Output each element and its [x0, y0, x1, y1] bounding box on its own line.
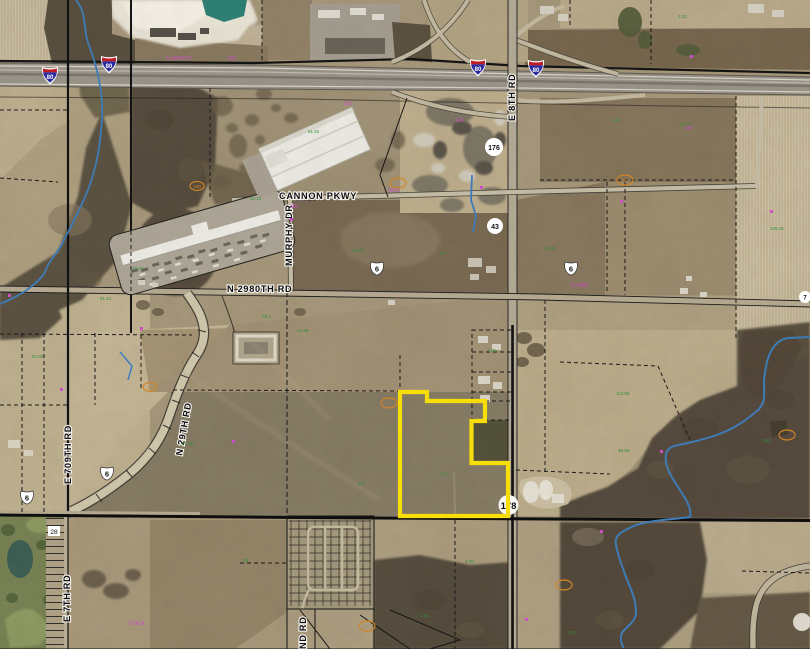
svg-text:2.23: 2.23 — [678, 14, 687, 19]
svg-text:40.92: 40.92 — [618, 448, 630, 453]
svg-text:N 2980TH RD: N 2980TH RD — [227, 284, 292, 294]
svg-text:114.96: 114.96 — [616, 391, 630, 396]
svg-text:MURPHY DR: MURPHY DR — [284, 204, 294, 266]
svg-text:RD: RD — [228, 56, 236, 62]
svg-text:0.91: 0.91 — [762, 438, 771, 443]
svg-text:40: 40 — [440, 251, 446, 256]
svg-text:6: 6 — [105, 469, 109, 478]
svg-text:28: 28 — [50, 529, 58, 536]
svg-text:28.1: 28.1 — [262, 314, 271, 319]
svg-text:302: 302 — [621, 178, 629, 183]
svg-text:43: 43 — [491, 224, 499, 231]
svg-text:40.20: 40.20 — [544, 246, 556, 251]
svg-text:51.21: 51.21 — [100, 296, 112, 301]
svg-text:112: 112 — [343, 101, 352, 107]
svg-text:28: 28 — [243, 558, 249, 563]
svg-text:80: 80 — [475, 67, 482, 73]
svg-text:E 8TH RD: E 8TH RD — [507, 74, 517, 121]
svg-text:301: 301 — [290, 204, 299, 210]
svg-text:22.12: 22.12 — [250, 196, 262, 201]
svg-text:303: 303 — [146, 385, 154, 390]
svg-text:CANNON PKWY: CANNON PKWY — [279, 191, 357, 201]
svg-text:6: 6 — [25, 493, 29, 502]
svg-text:61.71: 61.71 — [680, 122, 692, 127]
svg-text:3011: 3011 — [388, 188, 400, 194]
svg-text:80: 80 — [106, 64, 113, 70]
svg-text:1.40: 1.40 — [420, 613, 429, 618]
svg-text:61.03: 61.03 — [32, 354, 44, 359]
svg-text:140: 140 — [455, 118, 464, 124]
svg-text:0.36: 0.36 — [488, 348, 497, 353]
svg-text:61.92: 61.92 — [308, 129, 320, 134]
svg-text:176: 176 — [488, 145, 500, 152]
svg-text:19.49: 19.49 — [352, 248, 364, 253]
svg-text:2.35: 2.35 — [465, 559, 474, 564]
svg-text:80: 80 — [47, 75, 54, 81]
svg-text:E 709TH RD: E 709TH RD — [63, 425, 73, 484]
svg-text:5.21: 5.21 — [612, 118, 621, 123]
svg-text:601: 601 — [358, 481, 366, 486]
svg-text:1.42: 1.42 — [440, 471, 449, 476]
svg-text:N 2980: N 2980 — [571, 283, 589, 289]
svg-text:10.49: 10.49 — [132, 266, 144, 271]
svg-text:80: 80 — [533, 68, 540, 74]
svg-text:17.39: 17.39 — [182, 441, 194, 446]
svg-text:UTICA: UTICA — [128, 621, 145, 627]
svg-text:6: 6 — [375, 264, 379, 273]
svg-text:126.15: 126.15 — [770, 226, 784, 231]
svg-text:N 3049TH: N 3049TH — [166, 56, 191, 62]
svg-text:100: 100 — [193, 184, 201, 189]
svg-text:1.05: 1.05 — [568, 630, 577, 635]
svg-text:ND RD: ND RD — [298, 616, 308, 649]
svg-text:E 7TH RD: E 7TH RD — [62, 575, 72, 622]
svg-text:6: 6 — [569, 264, 573, 273]
svg-text:14.39: 14.39 — [297, 328, 309, 333]
